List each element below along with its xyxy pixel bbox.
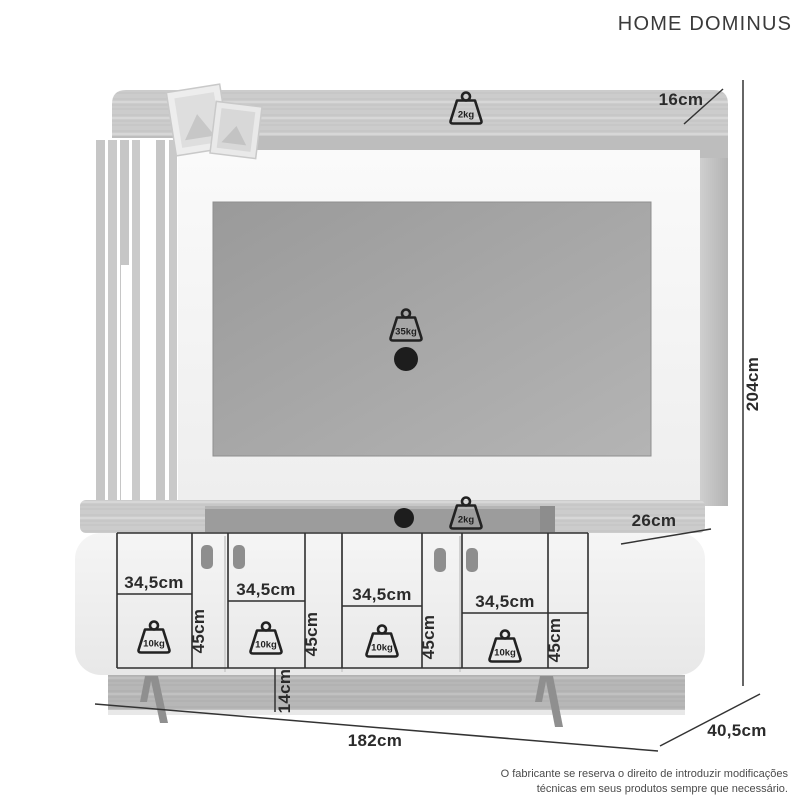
weight-label: 10kg bbox=[255, 640, 277, 651]
cabinet-body bbox=[75, 533, 705, 675]
weight-label: 10kg bbox=[143, 639, 165, 650]
slat bbox=[108, 140, 117, 500]
product-dimension-sheet: HOME DOMINUS 2kg 35kg bbox=[0, 0, 800, 800]
soundbar bbox=[205, 506, 555, 532]
cable-hole-shelf bbox=[394, 508, 414, 528]
unit-right-side-panel bbox=[700, 136, 728, 506]
slat-panel bbox=[94, 138, 180, 502]
weight-label: 2kg bbox=[458, 515, 475, 526]
dim-shelf-depth-label: 26cm bbox=[632, 511, 677, 530]
soundbar-highlight bbox=[205, 506, 555, 509]
door-width-label-4: 34,5cm bbox=[475, 592, 534, 611]
picture-frame-right bbox=[210, 101, 262, 158]
dim-top-depth-label: 16cm bbox=[659, 90, 704, 109]
disclaimer-line1: O fabricante se reserva o direito de int… bbox=[501, 768, 789, 780]
door-handle bbox=[201, 545, 213, 569]
weight-label: 35kg bbox=[395, 327, 417, 338]
tv-screen bbox=[213, 202, 651, 456]
base-shade bbox=[108, 675, 685, 710]
door-height-label-1: 45cm bbox=[189, 609, 208, 654]
page-title: HOME DOMINUS bbox=[618, 13, 792, 35]
door-height-label-2: 45cm bbox=[302, 612, 321, 657]
door-height-label-3: 45cm bbox=[419, 615, 438, 660]
led-strip bbox=[121, 265, 130, 500]
weight-label: 10kg bbox=[371, 643, 393, 654]
dim-width-label: 182cm bbox=[348, 731, 402, 750]
door-handle bbox=[466, 548, 478, 572]
door-height-label-4: 45cm bbox=[545, 618, 564, 663]
furniture-diagram: HOME DOMINUS 2kg 35kg bbox=[0, 0, 800, 800]
slat bbox=[169, 140, 177, 500]
weight-label: 10kg bbox=[494, 648, 516, 659]
cable-hole-tv bbox=[394, 347, 418, 371]
door-width-label-1: 34,5cm bbox=[124, 573, 183, 592]
soundbar-end-cap bbox=[540, 506, 555, 532]
dim-base-height-label: 14cm bbox=[275, 669, 294, 714]
slat bbox=[156, 140, 165, 500]
door-width-label-2: 34,5cm bbox=[236, 580, 295, 599]
disclaimer-line2: técnicas em seus produtos sempre que nec… bbox=[537, 783, 788, 795]
slat bbox=[96, 140, 105, 500]
door-handle bbox=[434, 548, 446, 572]
weight-label: 2kg bbox=[458, 110, 475, 121]
dim-depth-label: 40,5cm bbox=[707, 721, 766, 740]
door-width-label-3: 34,5cm bbox=[352, 585, 411, 604]
door-handle bbox=[233, 545, 245, 569]
slat bbox=[132, 140, 140, 500]
dim-height-label: 204cm bbox=[743, 357, 762, 411]
